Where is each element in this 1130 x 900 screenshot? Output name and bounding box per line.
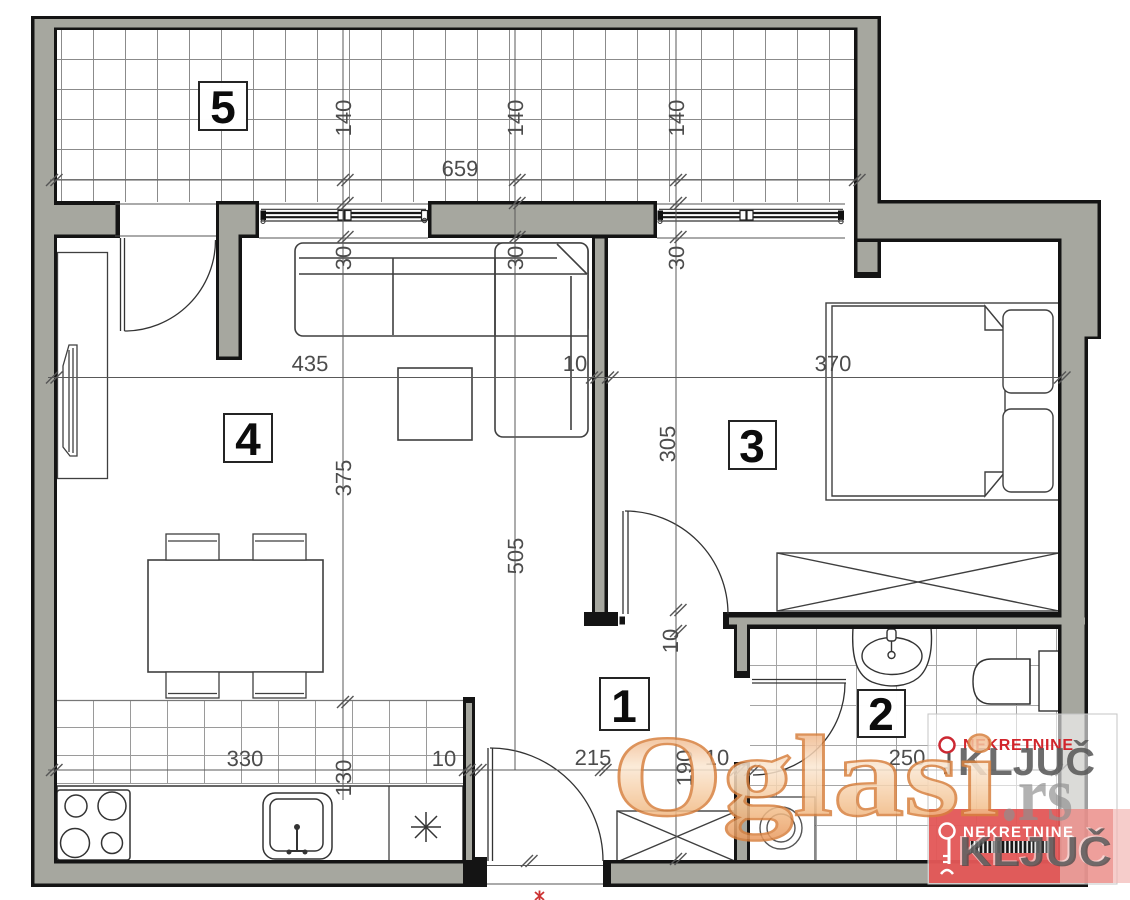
svg-text:375: 375 [331, 460, 356, 497]
svg-text:30: 30 [331, 246, 356, 270]
svg-text:30: 30 [503, 246, 528, 270]
svg-text:30: 30 [664, 246, 689, 270]
svg-text:435: 435 [292, 351, 329, 376]
svg-text:215: 215 [575, 745, 612, 770]
svg-text:330: 330 [227, 746, 264, 771]
svg-text:505: 505 [503, 538, 528, 575]
svg-text:140: 140 [664, 100, 689, 137]
svg-text:305: 305 [655, 426, 680, 463]
svg-text:659: 659 [442, 156, 479, 181]
svg-text:140: 140 [503, 100, 528, 137]
svg-text:370: 370 [815, 351, 852, 376]
svg-text:10: 10 [563, 351, 587, 376]
svg-text:130: 130 [331, 760, 356, 797]
svg-text:140: 140 [331, 100, 356, 137]
svg-text:.rs: .rs [1001, 750, 1073, 837]
svg-text:Oglasi: Oglasi [612, 713, 999, 841]
svg-text:10: 10 [432, 746, 456, 771]
svg-text:10: 10 [658, 629, 683, 653]
